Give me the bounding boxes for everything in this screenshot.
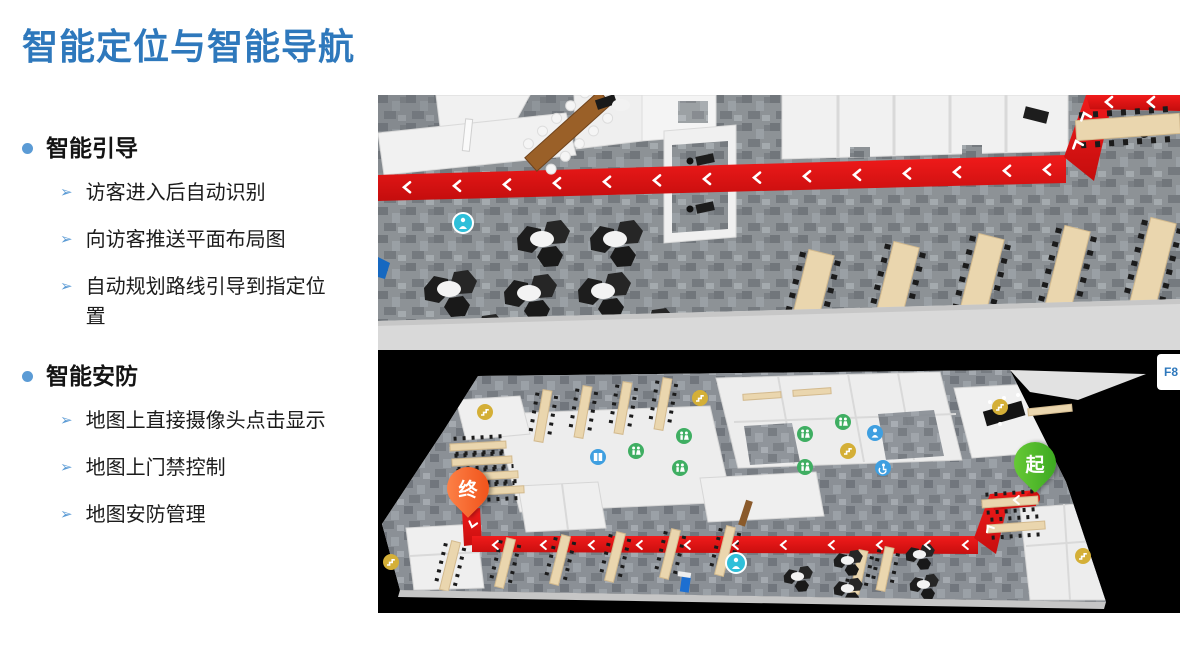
list-item: ➢ 自动规划路线引导到指定位置 bbox=[60, 272, 382, 332]
chair bbox=[523, 139, 533, 149]
list-item: ➢ 地图上门禁控制 bbox=[60, 453, 382, 483]
indoor-map-closeup[interactable] bbox=[378, 95, 1180, 350]
restroom-icon[interactable] bbox=[835, 414, 851, 430]
top-map-svg bbox=[378, 95, 1180, 350]
bullet-list: 智能引导 ➢ 访客进入后自动识别 ➢ 向访客推送平面布局图 ➢ 自动规划路线引导… bbox=[22, 132, 382, 547]
cyan-person-icon[interactable] bbox=[726, 553, 746, 573]
start-marker-label: 起 bbox=[1025, 450, 1044, 477]
restroom-icon[interactable] bbox=[672, 460, 688, 476]
cyan-person-icon[interactable] bbox=[453, 213, 473, 233]
stairs-icon[interactable] bbox=[1075, 548, 1091, 564]
page-title: 智能定位与智能导航 bbox=[22, 18, 355, 70]
restroom-icon[interactable] bbox=[676, 428, 692, 444]
list-item: ➢ 向访客推送平面布局图 bbox=[60, 225, 382, 255]
list-item: ➢ 地图安防管理 bbox=[60, 500, 382, 530]
bottom-map-svg bbox=[378, 350, 1180, 613]
slide: 智能定位与智能导航 智能引导 ➢ 访客进入后自动识别 ➢ 向访客推送平面布局图 … bbox=[0, 0, 1180, 650]
stairs-icon[interactable] bbox=[992, 399, 1008, 415]
chair bbox=[603, 113, 613, 123]
stairs-icon[interactable] bbox=[692, 390, 708, 406]
arrow-bullet-icon: ➢ bbox=[60, 406, 73, 436]
restroom-icon[interactable] bbox=[797, 459, 813, 475]
section-heading: 智能引导 bbox=[46, 132, 138, 164]
stairs-icon[interactable] bbox=[477, 404, 493, 420]
indoor-map-overview[interactable]: 终 起 F8 bbox=[378, 350, 1180, 613]
list-item-text: 地图上直接摄像头点击显示 bbox=[86, 406, 336, 436]
bullet-dot-icon bbox=[22, 143, 33, 154]
arrow-bullet-icon: ➢ bbox=[60, 453, 73, 483]
bullet-dot-icon bbox=[22, 371, 33, 382]
chair bbox=[552, 113, 562, 123]
chair bbox=[560, 151, 570, 161]
floor-selector[interactable]: F8 bbox=[1157, 354, 1180, 390]
list-item: ➢ 地图上直接摄像头点击显示 bbox=[60, 406, 382, 436]
restroom-icon[interactable] bbox=[797, 426, 813, 442]
stairs-icon[interactable] bbox=[840, 443, 856, 459]
list-item-text: 自动规划路线引导到指定位置 bbox=[86, 272, 336, 332]
chair bbox=[546, 164, 556, 174]
section-smart-guidance: 智能引导 ➢ 访客进入后自动识别 ➢ 向访客推送平面布局图 ➢ 自动规划路线引导… bbox=[22, 132, 382, 332]
stairs-icon[interactable] bbox=[383, 554, 399, 570]
list-item: ➢ 访客进入后自动识别 bbox=[60, 178, 382, 208]
chair bbox=[574, 139, 584, 149]
list-item-text: 向访客推送平面布局图 bbox=[86, 225, 336, 255]
section-heading: 智能安防 bbox=[46, 360, 138, 392]
chair bbox=[566, 101, 576, 111]
list-item-text: 地图上门禁控制 bbox=[86, 453, 336, 483]
info-icon[interactable] bbox=[867, 425, 883, 441]
chair bbox=[589, 126, 599, 136]
list-item-text: 地图安防管理 bbox=[86, 500, 336, 530]
arrow-bullet-icon: ➢ bbox=[60, 500, 73, 530]
chair bbox=[538, 126, 548, 136]
end-marker-label: 终 bbox=[458, 475, 477, 502]
table bbox=[612, 99, 630, 111]
restroom-icon[interactable] bbox=[628, 443, 644, 459]
arrow-bullet-icon: ➢ bbox=[60, 225, 73, 255]
floor-label: F8 bbox=[1164, 365, 1178, 379]
arrow-bullet-icon: ➢ bbox=[60, 178, 73, 208]
accessible-icon[interactable] bbox=[875, 460, 891, 476]
arrow-bullet-icon: ➢ bbox=[60, 272, 73, 302]
list-item-text: 访客进入后自动识别 bbox=[86, 178, 336, 208]
elevator-icon[interactable] bbox=[590, 449, 606, 465]
section-smart-security: 智能安防 ➢ 地图上直接摄像头点击显示 ➢ 地图上门禁控制 ➢ 地图安防管理 bbox=[22, 360, 382, 530]
